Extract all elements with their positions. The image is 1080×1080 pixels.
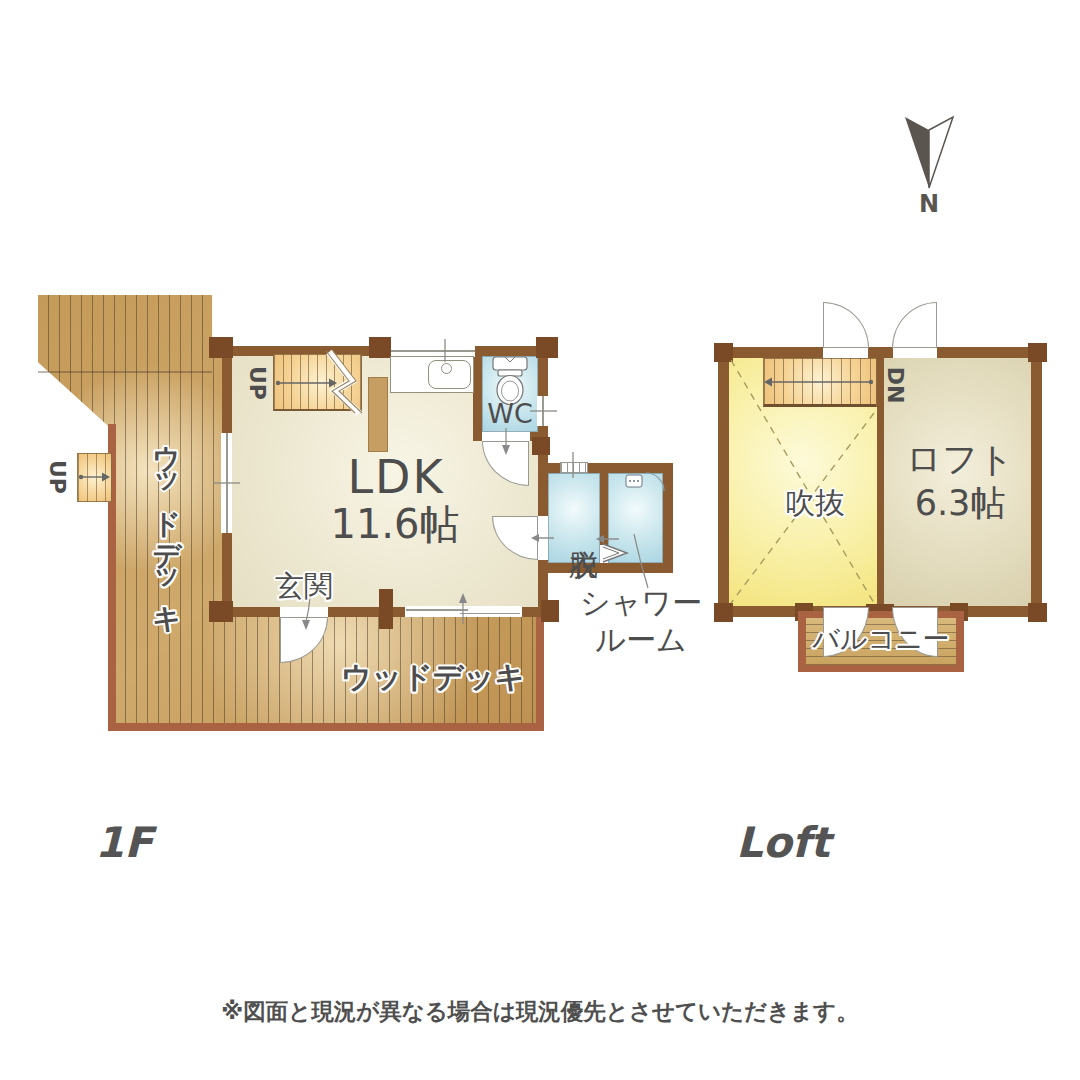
floor-plan-canvas: N UP UP LDK 11.6帖 WC 玄関 脱衣 シャワー ルーム ウッドデ… [0, 0, 1080, 1080]
void-label: 吹抜 [783, 486, 847, 518]
f1-post-bottom-left [209, 601, 233, 622]
dressing-vent-window [560, 462, 588, 473]
window-top-kitchen-line [390, 350, 475, 352]
kitchen-partition [368, 377, 388, 452]
f1-post-top-left [209, 337, 233, 358]
deck-steps-up-label: UP [47, 457, 67, 497]
f1-post-bottom-right [541, 600, 559, 622]
loft-wall-top [718, 347, 1042, 358]
wc-door-opening [482, 432, 530, 441]
loft-size-label: 6.3帖 [905, 484, 1015, 522]
kitchen-faucet [441, 363, 452, 374]
f1-wall-right [538, 346, 548, 617]
north-arrow-icon [905, 117, 953, 188]
deck-seam-line [38, 371, 212, 373]
entrance-label: 玄関 [269, 572, 339, 602]
annex-wall-middle [600, 473, 608, 545]
loft-wall-right [1031, 347, 1042, 617]
loft-post-top-left [714, 343, 733, 362]
ldk-size-label: 11.6帖 [320, 503, 470, 545]
entrance-door-opening [280, 607, 328, 617]
f1-stairs [273, 354, 362, 411]
loft-wall-left [718, 347, 729, 617]
wood-deck-bottom-label: ウッドデッキ [348, 659, 518, 693]
ldk-name-label: LDK [321, 455, 471, 500]
shower-floor [608, 473, 663, 563]
loft-stairs-dn-label: DN [885, 365, 905, 405]
wc-label: WC [480, 399, 540, 429]
window-wc-right-line [542, 396, 544, 426]
floor1-title: 1F [84, 821, 164, 865]
sliding-door-opening [405, 606, 522, 617]
deck-border-right [536, 615, 544, 731]
loft-post-top-right [1028, 343, 1047, 362]
f1-post-bottom-mid [379, 589, 393, 629]
wood-deck-side-label: ウッドデッキ [148, 436, 184, 608]
deck-entry-steps [77, 453, 112, 502]
loft-title: Loft [733, 821, 833, 865]
loft-door-swing-left [823, 302, 869, 348]
f1-post-annex-junction [532, 437, 550, 455]
window-left-wall-line [226, 433, 228, 533]
shower-room-label-line1: シャワー [576, 585, 706, 619]
dressing-label: 脱衣 [566, 490, 600, 564]
annex-wall-right [663, 463, 673, 573]
loft-name-label: ロフト [905, 440, 1015, 478]
loft-stairs [763, 358, 877, 407]
deck-border-bottom [108, 723, 544, 731]
sliding-door-panel1 [406, 609, 468, 611]
loft-door-swing-right [892, 302, 937, 348]
annex-wall-bottom [548, 563, 673, 573]
f1-post-top-right [536, 337, 558, 358]
footer-disclaimer: ※図面と現況が異なる場合は現況優先とさせていただきます。 [0, 996, 1080, 1026]
loft-post-bottom-left [714, 603, 733, 622]
balcony-label: バルコニー [806, 623, 956, 655]
dressing-door-opening [538, 516, 548, 560]
f1-stairs-up-label: UP [247, 363, 267, 403]
sliding-door-panel2 [460, 613, 520, 615]
shower-room-label-line2: ルーム [576, 622, 706, 656]
f1-post-top-mid [369, 337, 391, 358]
loft-door-opening-left [823, 347, 868, 358]
loft-post-bottom-right [1028, 603, 1047, 622]
loft-door-opening-right [893, 347, 937, 358]
compass-label: N [914, 191, 944, 217]
